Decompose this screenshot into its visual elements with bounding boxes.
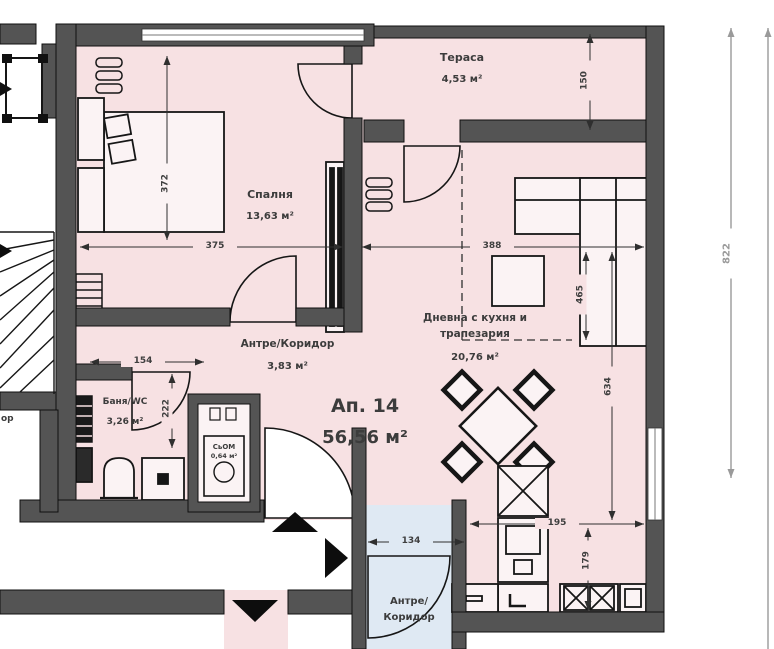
dim-465: 465	[576, 275, 587, 315]
staircase	[0, 232, 54, 394]
living-name-line1: Дневна с кухня и	[400, 312, 550, 324]
terrace-name: Тераса	[402, 52, 522, 65]
wall-right	[646, 26, 664, 628]
arrow-right-small-icon	[0, 244, 12, 258]
floor-plan-drawing	[0, 0, 774, 649]
dim-154: 154	[121, 356, 165, 367]
wall-bedroom-living	[344, 118, 362, 332]
dim-134: 134	[389, 536, 433, 547]
dim-222: 222	[162, 389, 173, 429]
coffee-table	[492, 256, 544, 306]
wall-left-lower	[40, 410, 58, 512]
wall-corridor-lower-r	[288, 590, 352, 614]
wall-stairs-bottom	[0, 392, 56, 410]
dim-388: 388	[470, 241, 514, 252]
dim-150: 150	[580, 61, 591, 101]
bedroom-area: 13,63 м²	[210, 211, 330, 223]
wall-entry-left	[352, 428, 366, 649]
stove	[560, 584, 618, 612]
entry-name-line2: Коридор	[366, 612, 452, 624]
dim-179: 179	[582, 541, 593, 581]
nightstand	[78, 98, 104, 160]
bath-area: 3,26 м²	[75, 417, 175, 427]
wall-kitchen-bottom	[452, 612, 664, 632]
terrace-area: 4,53 м²	[402, 74, 522, 86]
dim-375: 375	[193, 241, 237, 252]
wall-terrace-top	[374, 26, 664, 38]
dresser	[78, 168, 104, 232]
wall-stub	[344, 46, 362, 64]
wall-bedroom-bottom2	[296, 308, 344, 326]
toilet	[104, 458, 134, 498]
dim-372: 372	[161, 164, 172, 204]
closet-name: СьОМ	[198, 443, 250, 451]
hall-area: 3,83 м²	[215, 361, 360, 373]
wall-corridor-lower-l	[0, 590, 224, 614]
bath-name: Баня/WC	[75, 397, 175, 407]
entry-name-line1: Антре/	[366, 596, 452, 608]
closet-area: 0,64 м²	[198, 453, 250, 460]
washbasin	[76, 448, 92, 482]
corner-cabinet	[498, 584, 548, 612]
dim-195: 195	[535, 518, 579, 529]
living-name-line2: трапезария	[400, 328, 550, 340]
wall-neighbor-top	[0, 24, 36, 44]
hall-name: Антре/Коридор	[215, 338, 360, 350]
wall-left	[56, 24, 76, 514]
wall-terrace-bottom-r	[460, 120, 646, 142]
dining-set	[444, 372, 553, 481]
floor-plan: Тераса 4,53 м² Спалня 13,63 м² Дневна с …	[0, 0, 774, 649]
apartment-area: 56,56 м²	[290, 428, 440, 449]
drain	[158, 474, 168, 484]
apartment-number: Ап. 14	[290, 396, 440, 418]
neighbor-room-fragment: ор	[1, 414, 25, 424]
bedroom-name: Спалня	[210, 189, 330, 202]
dim-634: 634	[604, 367, 615, 407]
overall-dimension-lines	[731, 28, 768, 649]
dim-822: 822	[722, 229, 733, 279]
arrow-right-icon	[325, 538, 348, 578]
elevator	[0, 54, 48, 123]
wall-bedroom-bottom	[76, 308, 230, 326]
wall-terrace-bottom-l	[364, 120, 404, 142]
living-area: 20,76 м²	[400, 352, 550, 364]
